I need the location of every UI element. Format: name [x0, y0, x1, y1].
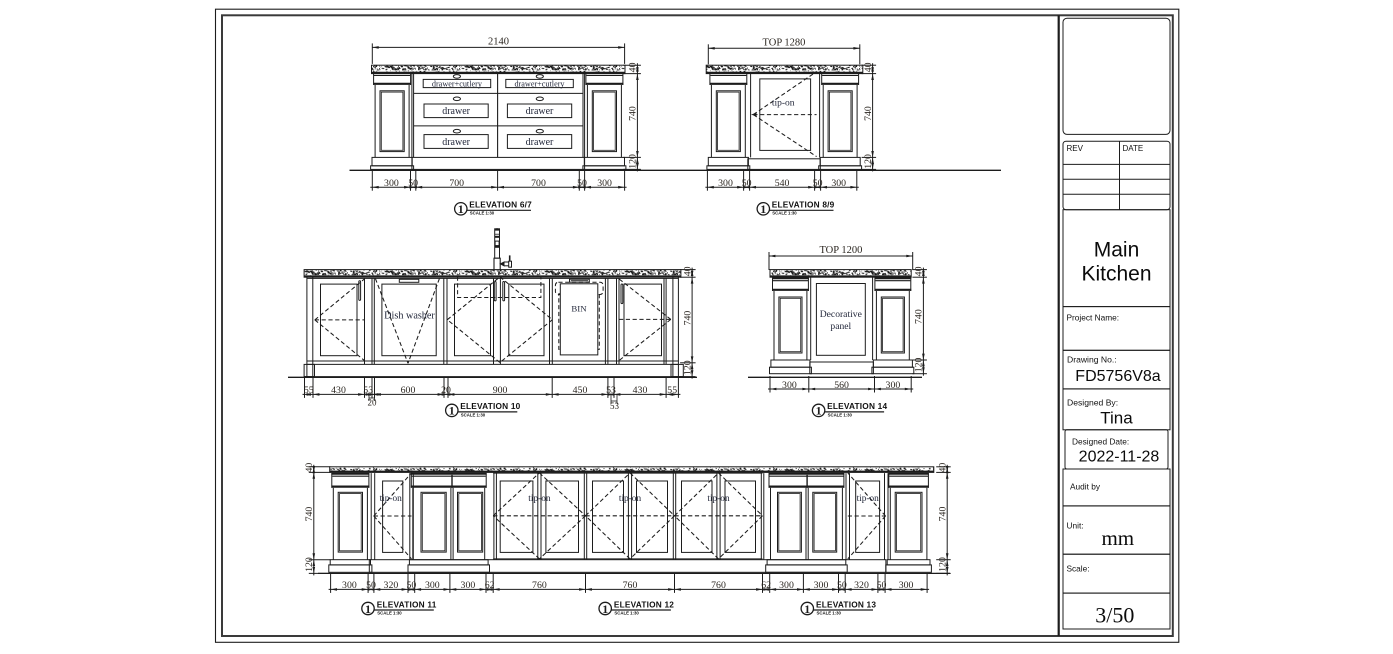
- svg-text:40: 40: [937, 463, 948, 473]
- svg-text:SCALE 1:30: SCALE 1:30: [377, 610, 402, 615]
- svg-text:tip-on: tip-on: [380, 494, 403, 504]
- svg-text:53: 53: [363, 385, 373, 396]
- svg-text:ELEVATION 11: ELEVATION 11: [377, 599, 437, 609]
- svg-text:50: 50: [837, 580, 847, 591]
- svg-text:drawer: drawer: [526, 106, 554, 117]
- svg-text:ELEVATION 12: ELEVATION 12: [614, 599, 674, 609]
- svg-text:1: 1: [365, 602, 371, 616]
- svg-text:300: 300: [886, 380, 901, 391]
- svg-text:2140: 2140: [488, 37, 509, 48]
- svg-text:SCALE 1:30: SCALE 1:30: [828, 412, 853, 417]
- svg-text:Decorative: Decorative: [820, 309, 862, 320]
- svg-text:ELEVATION 13: ELEVATION 13: [816, 599, 876, 609]
- svg-text:ELEVATION 14: ELEVATION 14: [827, 401, 887, 411]
- svg-text:320: 320: [854, 580, 869, 591]
- svg-text:300: 300: [597, 178, 612, 189]
- svg-text:1: 1: [816, 404, 822, 418]
- svg-text:ELEVATION 8/9: ELEVATION 8/9: [772, 200, 835, 210]
- svg-text:300: 300: [899, 580, 914, 591]
- svg-text:740: 740: [304, 507, 315, 522]
- svg-text:120: 120: [863, 154, 874, 169]
- svg-text:740: 740: [914, 309, 925, 324]
- svg-text:540: 540: [775, 178, 790, 189]
- svg-text:62: 62: [485, 580, 495, 591]
- svg-text:TOP 1280: TOP 1280: [763, 38, 806, 49]
- svg-text:740: 740: [628, 106, 639, 121]
- svg-text:Unit:: Unit:: [1067, 521, 1084, 531]
- svg-text:Main: Main: [1094, 239, 1140, 262]
- svg-text:700: 700: [449, 178, 464, 189]
- svg-text:120: 120: [682, 360, 693, 375]
- svg-text:600: 600: [401, 385, 416, 396]
- svg-text:50: 50: [577, 178, 587, 189]
- svg-text:ELEVATION 6/7: ELEVATION 6/7: [469, 200, 532, 210]
- svg-text:300: 300: [425, 580, 440, 591]
- svg-text:ELEVATION 10: ELEVATION 10: [460, 401, 520, 411]
- svg-text:1: 1: [449, 404, 455, 418]
- svg-text:560: 560: [834, 380, 849, 391]
- svg-text:700: 700: [531, 178, 546, 189]
- svg-text:50: 50: [813, 178, 823, 189]
- svg-text:TOP 1200: TOP 1200: [819, 245, 862, 256]
- svg-text:Drawing No.:: Drawing No.:: [1067, 355, 1117, 365]
- svg-text:320: 320: [384, 580, 399, 591]
- svg-text:50: 50: [407, 580, 417, 591]
- svg-text:120: 120: [628, 154, 639, 169]
- svg-text:760: 760: [711, 580, 726, 591]
- svg-text:Tina: Tina: [1100, 409, 1133, 428]
- svg-text:tip-on: tip-on: [772, 99, 795, 109]
- svg-text:REV: REV: [1067, 144, 1084, 153]
- svg-text:Scale:: Scale:: [1067, 564, 1090, 574]
- svg-text:Project Name:: Project Name:: [1067, 313, 1120, 323]
- svg-text:panel: panel: [830, 321, 851, 332]
- svg-text:tip-on: tip-on: [857, 494, 880, 504]
- svg-text:3/50: 3/50: [1095, 603, 1134, 628]
- svg-text:430: 430: [331, 385, 346, 396]
- svg-text:drawer: drawer: [442, 137, 470, 148]
- svg-text:40: 40: [863, 62, 874, 72]
- svg-text:SCALE 1:30: SCALE 1:30: [772, 211, 797, 216]
- svg-text:2022-11-28: 2022-11-28: [1079, 449, 1160, 466]
- svg-text:55: 55: [304, 385, 314, 396]
- svg-text:FD5756V8a: FD5756V8a: [1075, 368, 1160, 385]
- svg-text:Designed By:: Designed By:: [1067, 398, 1118, 408]
- svg-text:120: 120: [304, 557, 315, 572]
- svg-text:tip-on: tip-on: [619, 494, 642, 504]
- svg-text:BIN: BIN: [571, 304, 587, 314]
- svg-text:20: 20: [441, 385, 451, 396]
- svg-text:300: 300: [718, 178, 733, 189]
- svg-text:50: 50: [408, 178, 418, 189]
- svg-text:300: 300: [814, 580, 829, 591]
- svg-text:1: 1: [602, 602, 608, 616]
- svg-text:Kitchen: Kitchen: [1081, 263, 1151, 286]
- svg-text:1: 1: [804, 602, 810, 616]
- svg-text:SCALE 1:30: SCALE 1:30: [461, 412, 486, 417]
- svg-text:20: 20: [368, 398, 378, 408]
- svg-text:760: 760: [623, 580, 638, 591]
- svg-text:740: 740: [937, 507, 948, 522]
- svg-text:Dish washer: Dish washer: [384, 311, 435, 322]
- svg-text:53: 53: [610, 401, 620, 411]
- svg-text:430: 430: [633, 385, 648, 396]
- svg-text:1: 1: [760, 202, 766, 216]
- svg-text:55: 55: [667, 385, 677, 396]
- svg-text:62: 62: [761, 580, 771, 591]
- svg-text:300: 300: [342, 580, 357, 591]
- svg-text:drawer+cutlery: drawer+cutlery: [432, 79, 483, 88]
- svg-text:mm: mm: [1101, 526, 1134, 550]
- svg-text:300: 300: [384, 178, 399, 189]
- svg-text:SCALE 1:30: SCALE 1:30: [470, 211, 495, 216]
- svg-text:300: 300: [831, 178, 846, 189]
- svg-text:900: 900: [493, 385, 508, 396]
- svg-text:740: 740: [863, 106, 874, 121]
- svg-text:300: 300: [779, 580, 794, 591]
- svg-text:Audit by: Audit by: [1070, 481, 1101, 491]
- svg-text:40: 40: [304, 463, 315, 473]
- svg-text:50: 50: [877, 580, 887, 591]
- svg-text:drawer: drawer: [526, 137, 554, 148]
- svg-text:120: 120: [914, 357, 925, 372]
- svg-text:40: 40: [682, 266, 693, 276]
- svg-text:tip-on: tip-on: [707, 494, 730, 504]
- svg-text:50: 50: [742, 178, 752, 189]
- svg-text:tip-on: tip-on: [528, 494, 551, 504]
- svg-text:SCALE 1:30: SCALE 1:30: [614, 610, 639, 615]
- svg-text:50: 50: [366, 580, 376, 591]
- svg-text:120: 120: [937, 557, 948, 572]
- svg-text:300: 300: [782, 380, 797, 391]
- svg-text:drawer: drawer: [442, 106, 470, 117]
- svg-text:300: 300: [461, 580, 476, 591]
- svg-text:40: 40: [628, 62, 639, 72]
- svg-text:450: 450: [573, 385, 588, 396]
- svg-text:DATE: DATE: [1123, 144, 1144, 153]
- svg-text:40: 40: [914, 266, 925, 276]
- svg-text:drawer+cutlery: drawer+cutlery: [514, 79, 565, 88]
- svg-text:Designed Date:: Designed Date:: [1072, 437, 1129, 447]
- svg-text:740: 740: [682, 311, 693, 326]
- svg-text:760: 760: [532, 580, 547, 591]
- svg-text:1: 1: [458, 202, 464, 216]
- svg-text:SCALE 1:30: SCALE 1:30: [817, 610, 842, 615]
